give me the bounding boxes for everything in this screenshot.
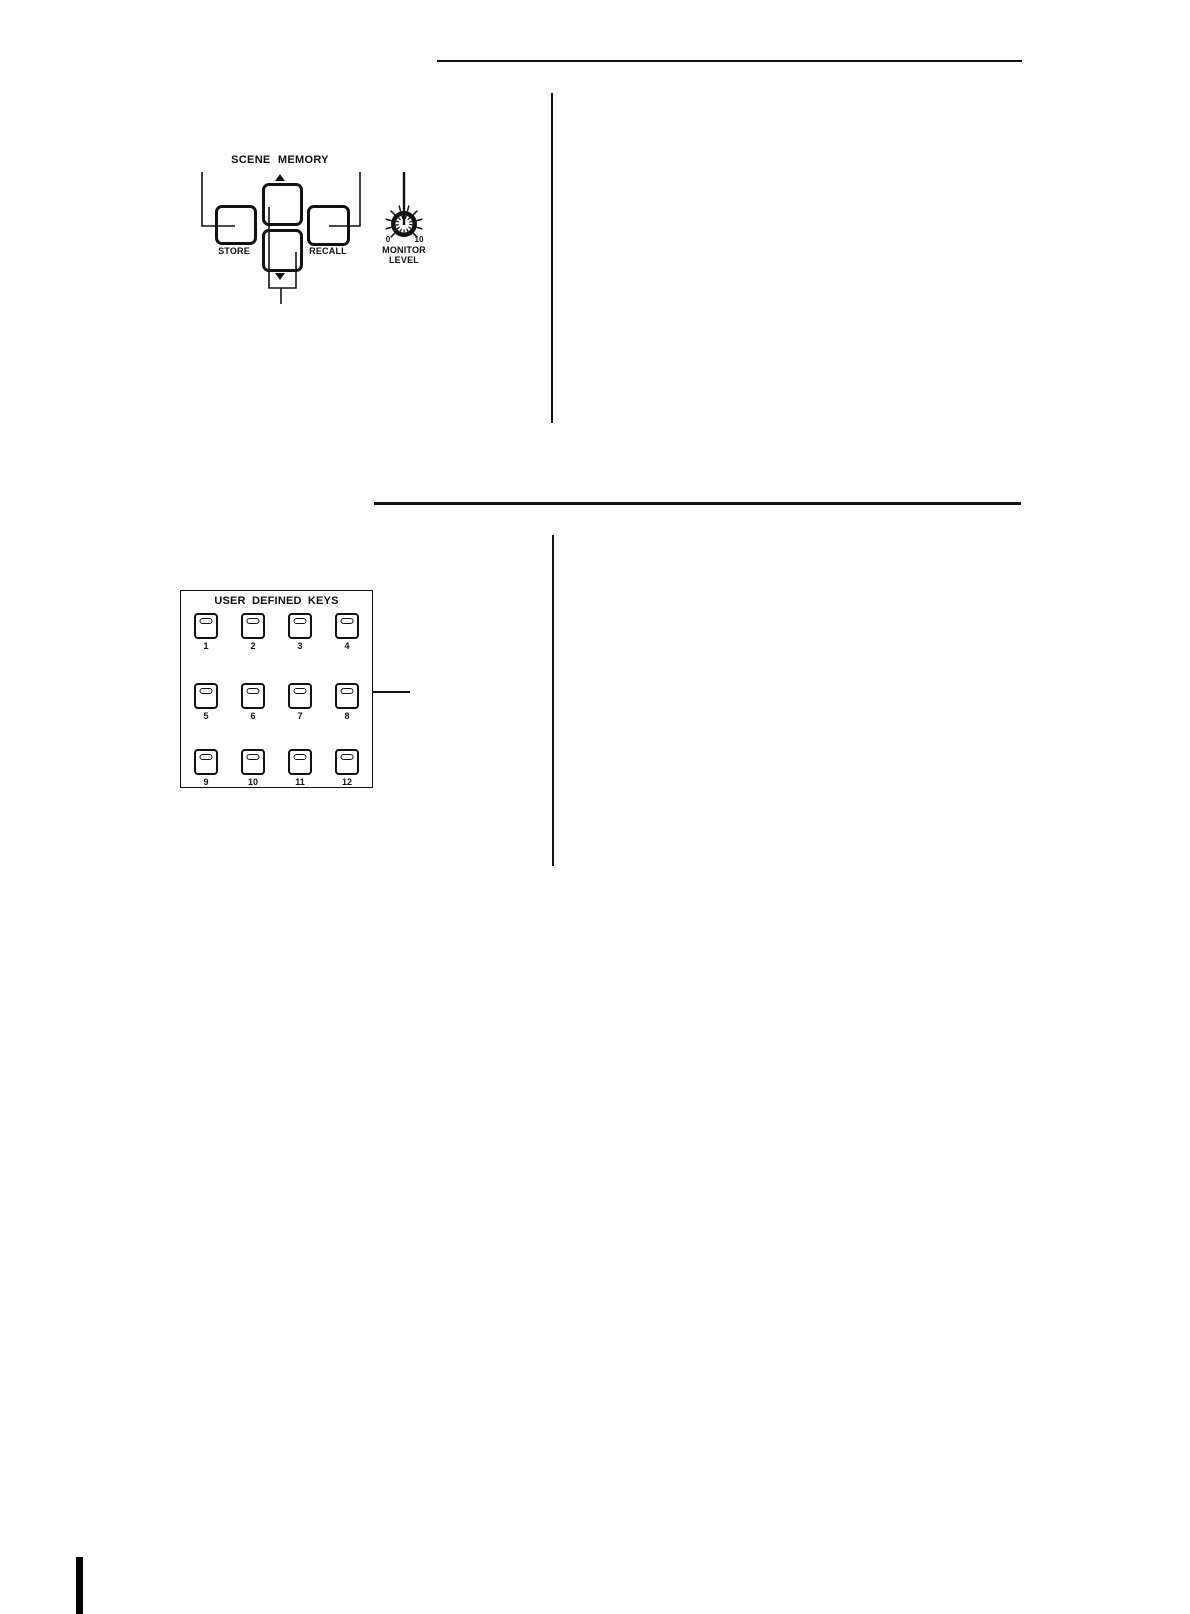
user-key-3-label: 3 — [288, 641, 312, 651]
user-key-3-button — [288, 613, 312, 639]
store-button — [215, 205, 257, 245]
led-icon — [341, 618, 354, 624]
user-key-5: 5 — [194, 683, 218, 721]
user-key-12-label: 12 — [335, 777, 359, 787]
page-edge-marker — [76, 1557, 83, 1614]
user-key-7-button — [288, 683, 312, 709]
user-key-5-label: 5 — [194, 711, 218, 721]
user-key-12: 12 — [335, 749, 359, 787]
user-key-8: 8 — [335, 683, 359, 721]
led-icon — [341, 688, 354, 694]
user-key-3: 3 — [288, 613, 312, 651]
user-key-1: 1 — [194, 613, 218, 651]
led-icon — [294, 688, 307, 694]
user-key-6-button — [241, 683, 265, 709]
user-key-5-button — [194, 683, 218, 709]
user-key-7-label: 7 — [288, 711, 312, 721]
led-icon — [294, 754, 307, 760]
user-key-11-label: 11 — [288, 777, 312, 787]
user-defined-keys-box: USER DEFINED KEYS 1 2 3 4 5 6 7 — [180, 590, 373, 788]
user-key-2-button — [241, 613, 265, 639]
led-icon — [247, 754, 260, 760]
scene-up-button — [262, 183, 303, 226]
user-key-9-label: 9 — [194, 777, 218, 787]
down-arrow-icon — [275, 273, 285, 280]
store-label: STORE — [205, 247, 263, 256]
led-icon — [341, 754, 354, 760]
column-divider-lower — [552, 535, 554, 866]
user-key-8-button — [335, 683, 359, 709]
user-key-8-label: 8 — [335, 711, 359, 721]
user-key-4-button — [335, 613, 359, 639]
recall-button — [307, 205, 350, 246]
user-key-1-button — [194, 613, 218, 639]
led-icon — [200, 688, 213, 694]
user-key-7: 7 — [288, 683, 312, 721]
user-key-9: 9 — [194, 749, 218, 787]
user-key-12-button — [335, 749, 359, 775]
recall-label: RECALL — [299, 247, 357, 256]
user-key-11: 11 — [288, 749, 312, 787]
user-key-11-button — [288, 749, 312, 775]
user-key-2-label: 2 — [241, 641, 265, 651]
user-key-10-label: 10 — [241, 777, 265, 787]
user-key-1-label: 1 — [194, 641, 218, 651]
column-divider-upper — [551, 93, 553, 423]
monitor-level-knob — [386, 206, 423, 238]
user-key-6-label: 6 — [241, 711, 265, 721]
user-key-10: 10 — [241, 749, 265, 787]
led-icon — [247, 618, 260, 624]
user-defined-keys-title: USER DEFINED KEYS — [181, 595, 372, 607]
user-key-6: 6 — [241, 683, 265, 721]
manual-page: SCENE MEMORY STORE RECALL 0 10 — [0, 0, 1190, 1614]
scene-down-button — [262, 229, 303, 272]
scene-memory-title: SCENE MEMORY — [190, 155, 370, 167]
user-key-9-button — [194, 749, 218, 775]
up-arrow-icon — [275, 174, 285, 181]
user-key-4-label: 4 — [335, 641, 359, 651]
user-key-10-button — [241, 749, 265, 775]
user-key-2: 2 — [241, 613, 265, 651]
led-icon — [200, 618, 213, 624]
user-key-4: 4 — [335, 613, 359, 651]
led-icon — [200, 754, 213, 760]
monitor-level-min-label: 0 — [382, 236, 394, 244]
section-rule — [374, 502, 1021, 505]
top-rule — [437, 60, 1022, 62]
led-icon — [294, 618, 307, 624]
monitor-level-max-label: 10 — [411, 236, 427, 244]
monitor-level-label-line2: LEVEL — [374, 256, 434, 265]
led-icon — [247, 688, 260, 694]
user-defined-keys-callout-line — [373, 691, 410, 693]
